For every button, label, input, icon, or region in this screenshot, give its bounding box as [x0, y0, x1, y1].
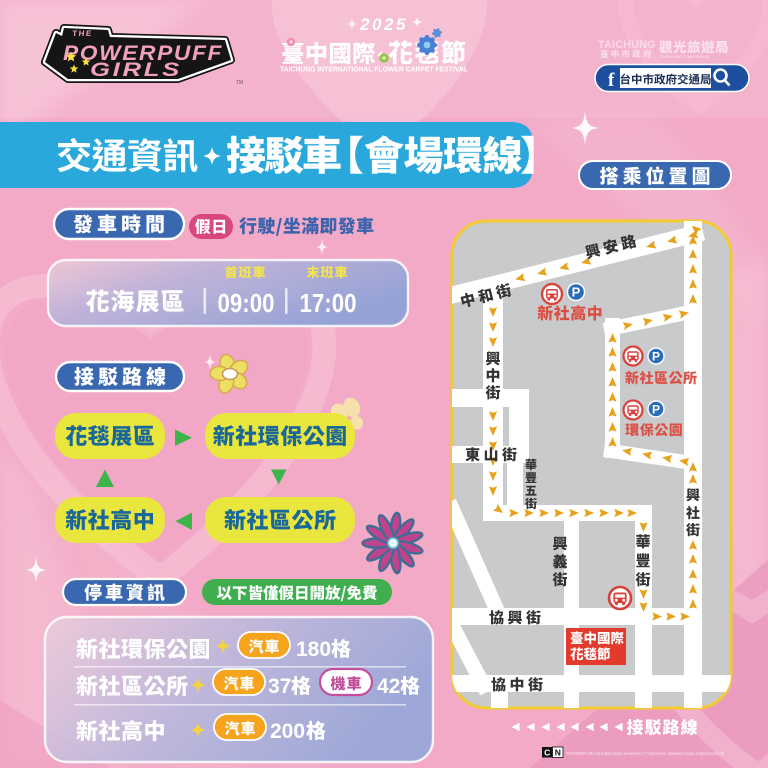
- svg-text:Tourism and Travel Bureau: Tourism and Travel Bureau: [659, 54, 710, 59]
- svg-text:2025: 2025: [359, 15, 408, 34]
- svg-text:P: P: [572, 285, 581, 300]
- svg-text:TAICHUNG: TAICHUNG: [598, 39, 656, 51]
- svg-text:200: 200: [270, 720, 305, 743]
- svg-text:P: P: [652, 402, 660, 416]
- svg-text:THE POWERPUFF GIRLS and all re: THE POWERPUFF GIRLS and all related char…: [566, 751, 724, 756]
- svg-text:42: 42: [377, 675, 400, 698]
- svg-text:f: f: [608, 70, 615, 91]
- svg-text:TAICHUNG INTERNATIONAL FLOWER: TAICHUNG INTERNATIONAL FLOWER CARPET FES…: [280, 67, 469, 74]
- svg-text:P: P: [652, 349, 660, 363]
- svg-text:N: N: [555, 748, 561, 758]
- svg-text:17:00: 17:00: [300, 288, 357, 318]
- svg-text:THE: THE: [72, 29, 93, 38]
- svg-text:37: 37: [268, 675, 291, 698]
- svg-text:180: 180: [296, 638, 331, 661]
- svg-text:GIRLS: GIRLS: [90, 60, 182, 81]
- svg-text:09:00: 09:00: [218, 288, 275, 318]
- svg-text:TM: TM: [236, 80, 243, 86]
- svg-text:C: C: [544, 748, 550, 758]
